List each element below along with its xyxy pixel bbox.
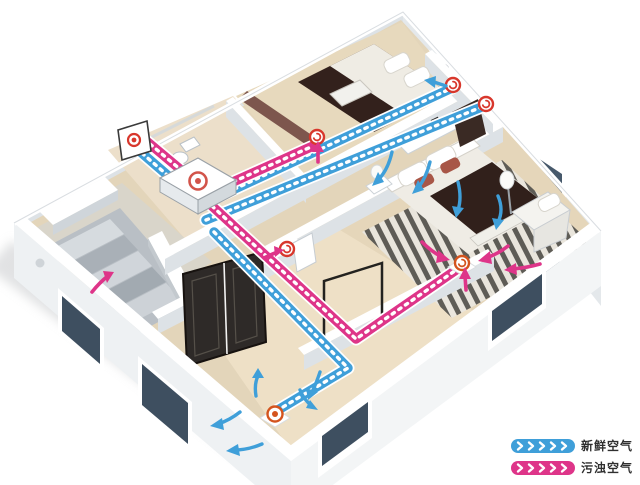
wall-knob (36, 259, 45, 268)
legend: 新鲜空气 污浊空气 (511, 437, 633, 476)
ventilation-diagram: 新鲜空气 污浊空气 (0, 0, 640, 485)
exhaust-air-arrow-icon (511, 461, 575, 475)
legend-item-polluted-air: 污浊空气 (511, 459, 633, 476)
legend-item-fresh-air: 新鲜空气 (511, 437, 633, 454)
house-isometric-scene (0, 0, 640, 485)
supply-diffuser-bedroom1 (446, 78, 460, 92)
legend-label-fresh-air: 新鲜空气 (581, 437, 633, 454)
fresh-air-arrow-icon (511, 439, 575, 453)
legend-label-polluted-air: 污浊空气 (581, 459, 633, 476)
exhaust-diffuser-bathroom2 (310, 130, 324, 144)
supply-diffuser-master (479, 97, 493, 111)
exhaust-diffuser-hall (280, 242, 294, 256)
